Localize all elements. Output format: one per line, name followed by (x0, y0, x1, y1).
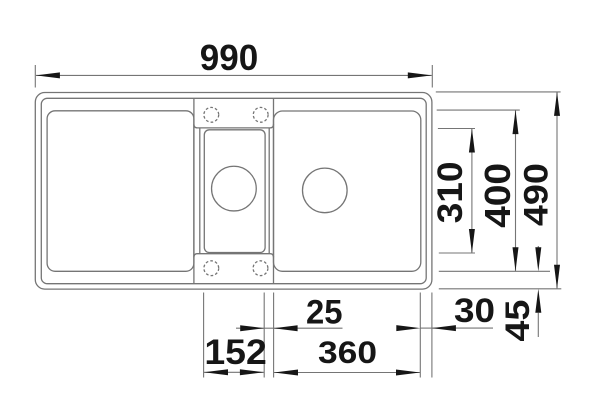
svg-text:25: 25 (306, 294, 343, 332)
svg-text:310: 310 (431, 161, 470, 223)
svg-text:490: 490 (518, 163, 556, 226)
svg-text:30: 30 (454, 292, 495, 330)
svg-text:45: 45 (499, 300, 537, 342)
svg-text:152: 152 (204, 333, 267, 372)
svg-text:990: 990 (200, 37, 259, 78)
svg-text:400: 400 (477, 163, 518, 228)
svg-text:360: 360 (318, 334, 377, 370)
